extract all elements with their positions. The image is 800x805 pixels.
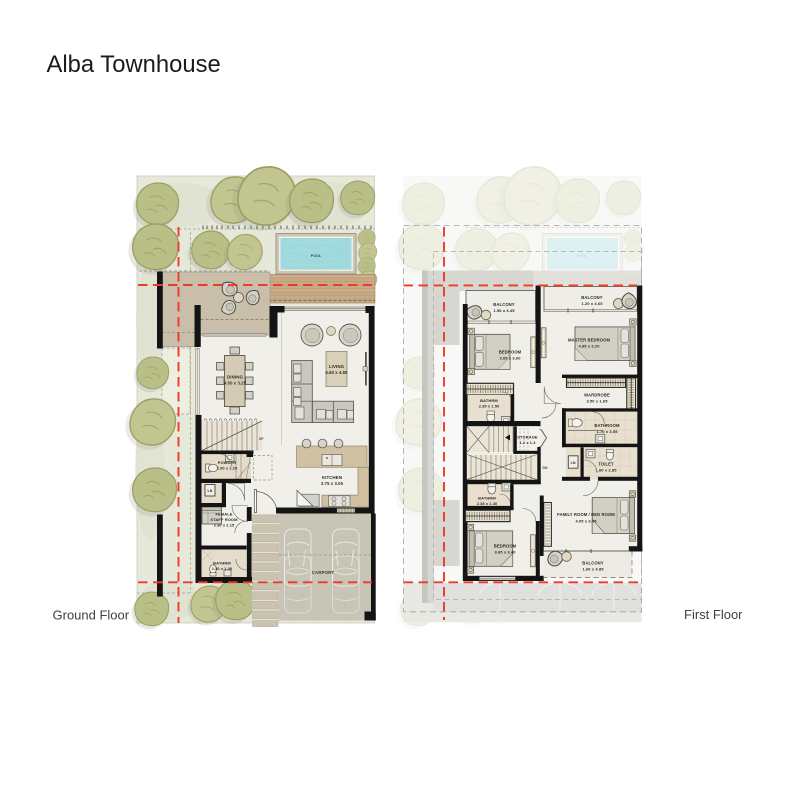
svg-text:DN: DN (543, 466, 549, 470)
svg-text:BALCONY: BALCONY (493, 302, 515, 307)
svg-text:2.35 x 1.50: 2.35 x 1.50 (479, 404, 500, 409)
svg-text:BALCONY: BALCONY (582, 561, 604, 566)
svg-text:FEMALE: FEMALE (215, 512, 232, 517)
svg-text:2.30 x 1.30: 2.30 x 1.30 (212, 566, 233, 571)
svg-text:STAFF ROOM: STAFF ROOM (210, 517, 238, 522)
svg-text:1.50 x 3.45: 1.50 x 3.45 (493, 308, 515, 313)
svg-text:4.05 x 3.45: 4.05 x 3.45 (575, 519, 597, 524)
svg-text:LIVING: LIVING (329, 364, 345, 369)
svg-text:POWDER: POWDER (218, 460, 237, 465)
svg-text:KITCHEN: KITCHEN (322, 475, 342, 480)
svg-text:WARDROBE: WARDROBE (584, 393, 610, 398)
svg-text:4.50 x 3.25: 4.50 x 3.25 (224, 381, 247, 386)
svg-text:First Floor: First Floor (684, 607, 743, 622)
svg-text:BEDROOM: BEDROOM (494, 544, 517, 549)
svg-text:Ground Floor: Ground Floor (53, 608, 130, 623)
svg-text:DINING: DINING (227, 375, 243, 380)
svg-text:3.50 x 1.65: 3.50 x 1.65 (586, 399, 608, 404)
svg-text:2.30 x 2.15: 2.30 x 2.15 (214, 523, 235, 528)
svg-text:MASTER BEDROOM: MASTER BEDROOM (568, 338, 611, 343)
svg-text:LN: LN (571, 461, 576, 465)
svg-text:1.70 x 3.55: 1.70 x 3.55 (596, 429, 618, 434)
svg-text:BATHRM: BATHRM (480, 398, 498, 403)
svg-text:Alba Townhouse: Alba Townhouse (47, 51, 221, 78)
svg-text:5.60 x 4.85: 5.60 x 4.85 (325, 370, 348, 375)
svg-text:BATHROOM: BATHROOM (594, 423, 620, 428)
svg-text:UP: UP (259, 437, 264, 441)
svg-text:BALCONY: BALCONY (581, 295, 603, 300)
svg-text:BATHRM: BATHRM (478, 496, 496, 501)
svg-text:3.65 x 3.60: 3.65 x 3.60 (499, 356, 521, 361)
svg-text:BATHRM: BATHRM (213, 561, 231, 566)
svg-text:STORAGE: STORAGE (517, 435, 538, 440)
svg-text:3.65 x 3.40: 3.65 x 3.40 (494, 550, 516, 555)
svg-text:3.75 x 3.05: 3.75 x 3.05 (321, 481, 344, 486)
svg-text:CARPORT: CARPORT (312, 570, 335, 575)
svg-text:1.60 x 4.85: 1.60 x 4.85 (582, 567, 604, 572)
svg-text:2.90 x 1.20: 2.90 x 1.20 (217, 466, 238, 471)
svg-text:FAMILY ROOM / BED ROOM: FAMILY ROOM / BED ROOM (557, 512, 615, 517)
svg-text:LN: LN (208, 489, 213, 493)
svg-text:1.60 x 2.85: 1.60 x 2.85 (595, 468, 617, 473)
svg-text:1.20 x 4.65: 1.20 x 4.65 (581, 301, 603, 306)
svg-text:1.2 x 1.3: 1.2 x 1.3 (519, 440, 536, 445)
svg-text:2.35 x 1.40: 2.35 x 1.40 (477, 501, 498, 506)
svg-text:POOL: POOL (311, 254, 322, 258)
svg-text:4.85 x 3.20: 4.85 x 3.20 (578, 344, 600, 349)
svg-text:BEDROOM: BEDROOM (499, 350, 522, 355)
svg-text:TOILET: TOILET (598, 462, 614, 467)
